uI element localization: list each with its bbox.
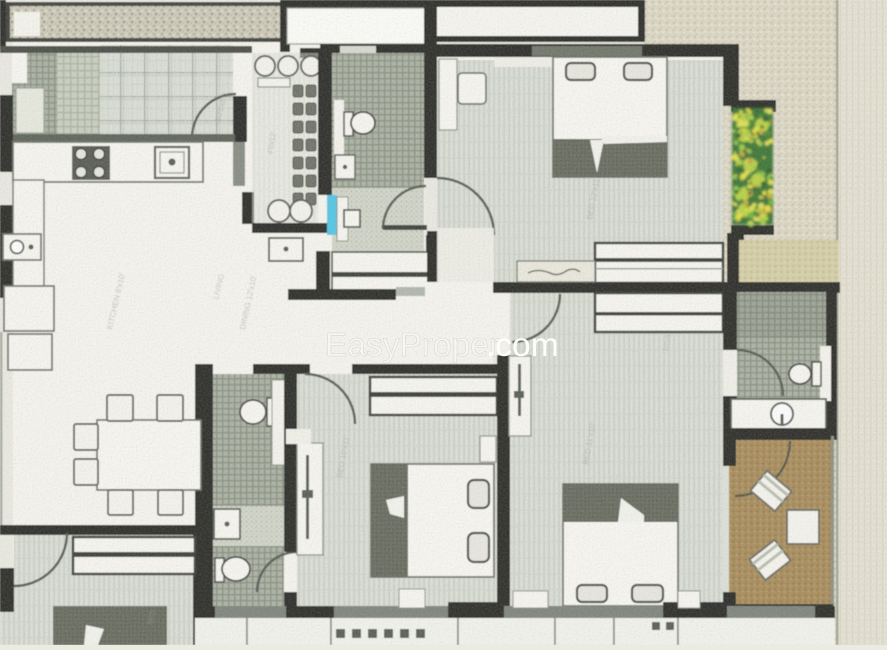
svg-text:.com: .com [486, 327, 559, 364]
svg-text:EasyProper: EasyProper [325, 327, 500, 364]
